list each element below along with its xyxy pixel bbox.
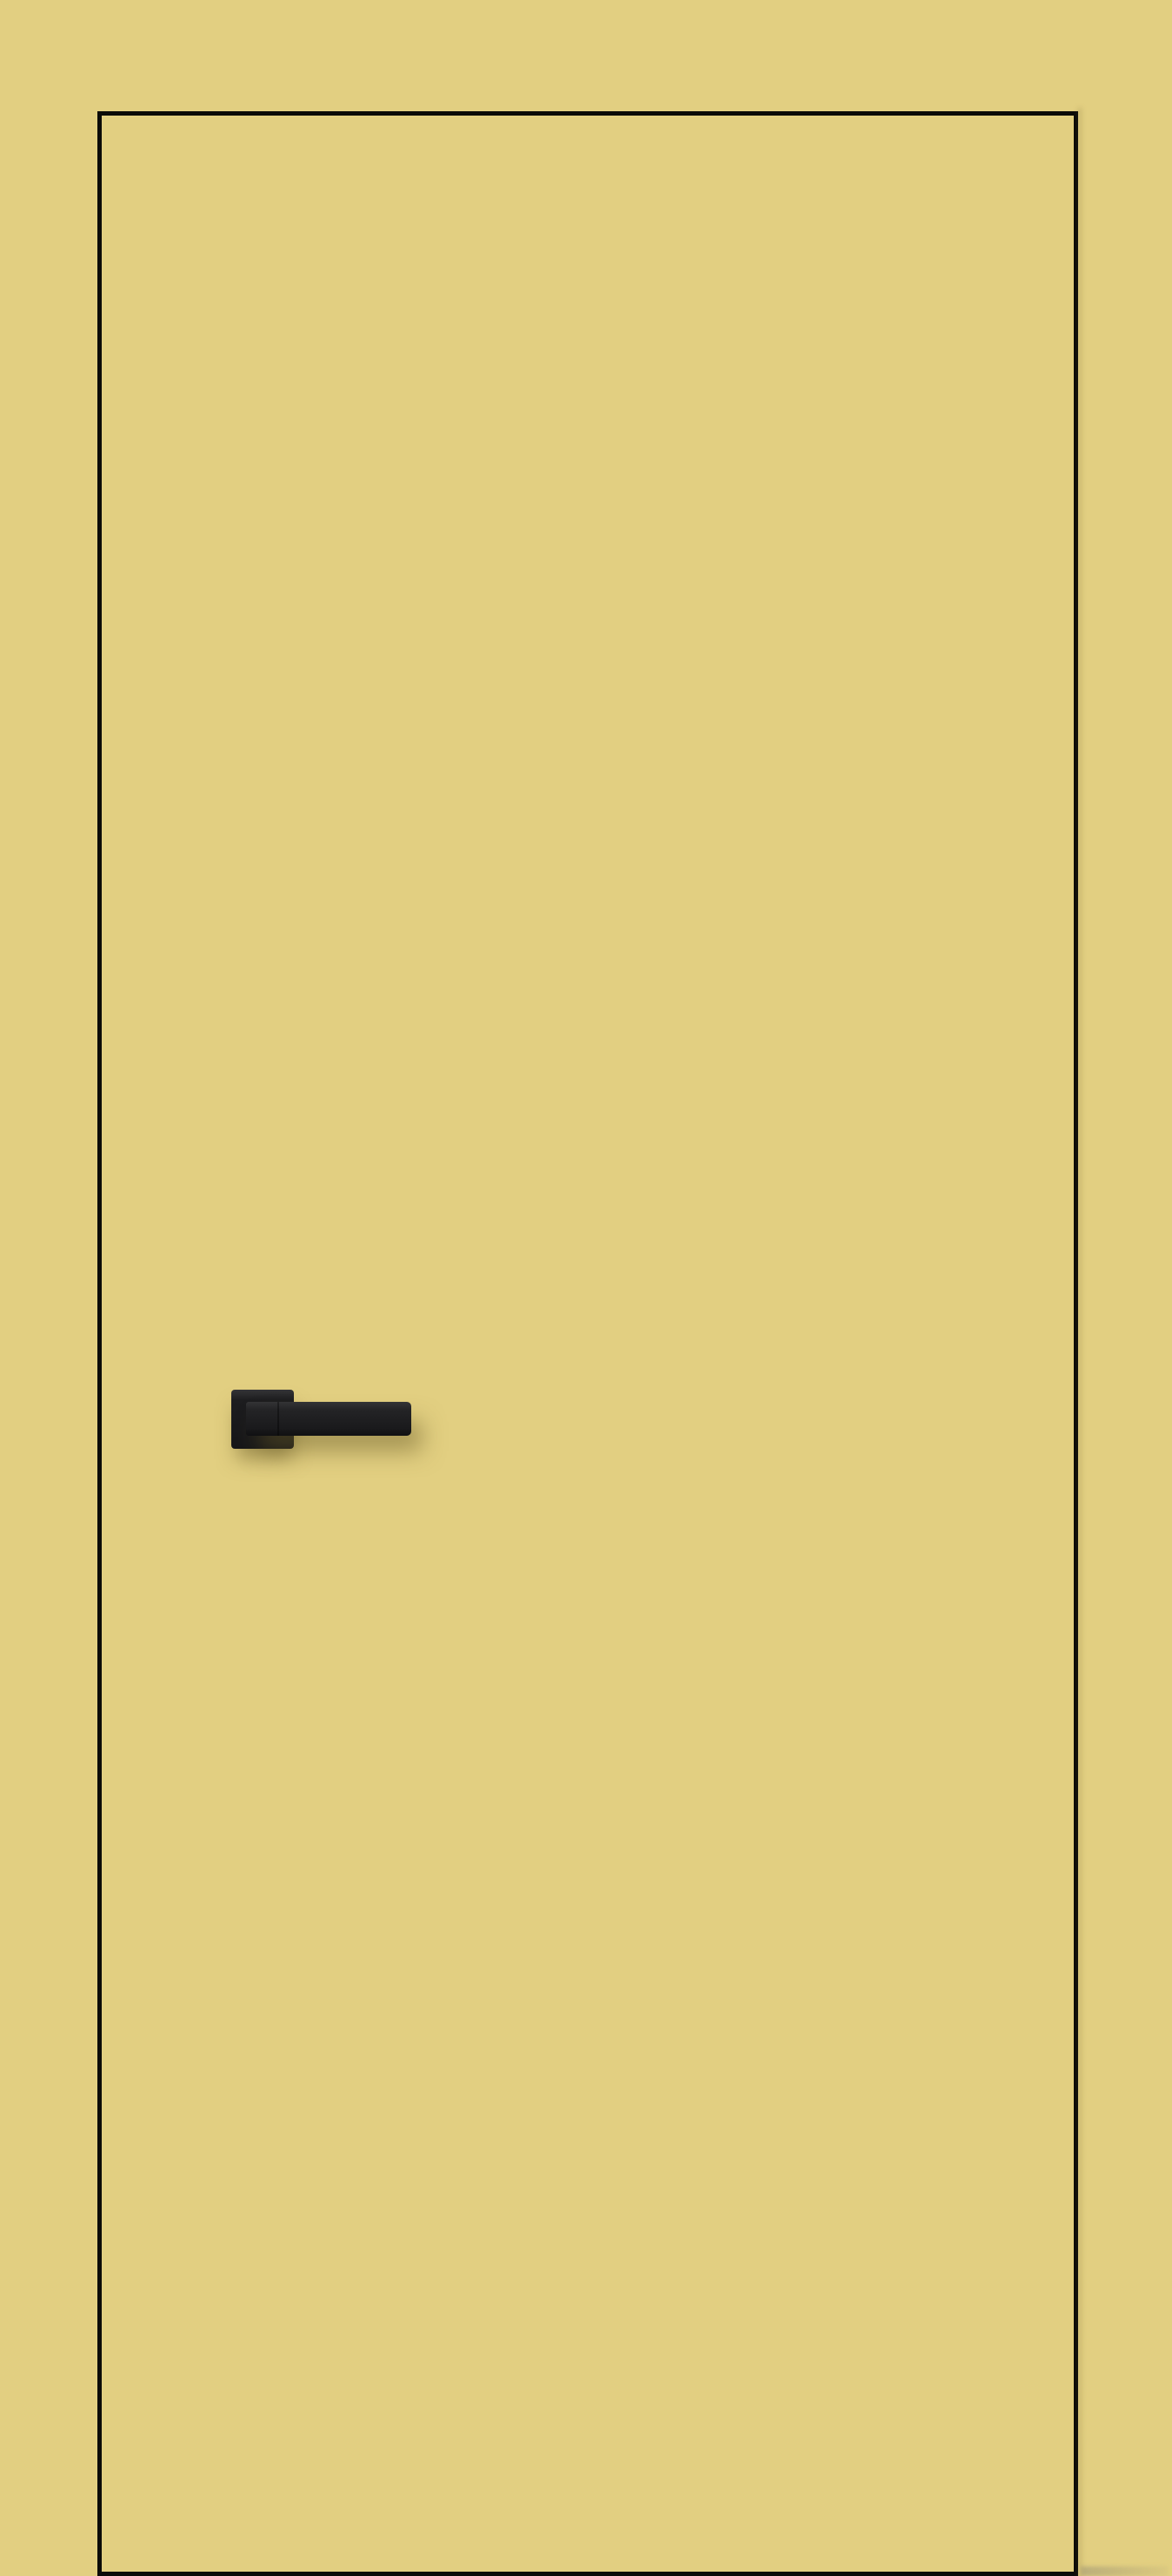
wall-background: { "scene": { "description": "Yellow flus… (0, 0, 1172, 2576)
door-leaf (97, 111, 1078, 2576)
door-handle (231, 1390, 449, 1485)
handle-lever (246, 1402, 411, 1436)
floor-shadow (1081, 2566, 1168, 2576)
